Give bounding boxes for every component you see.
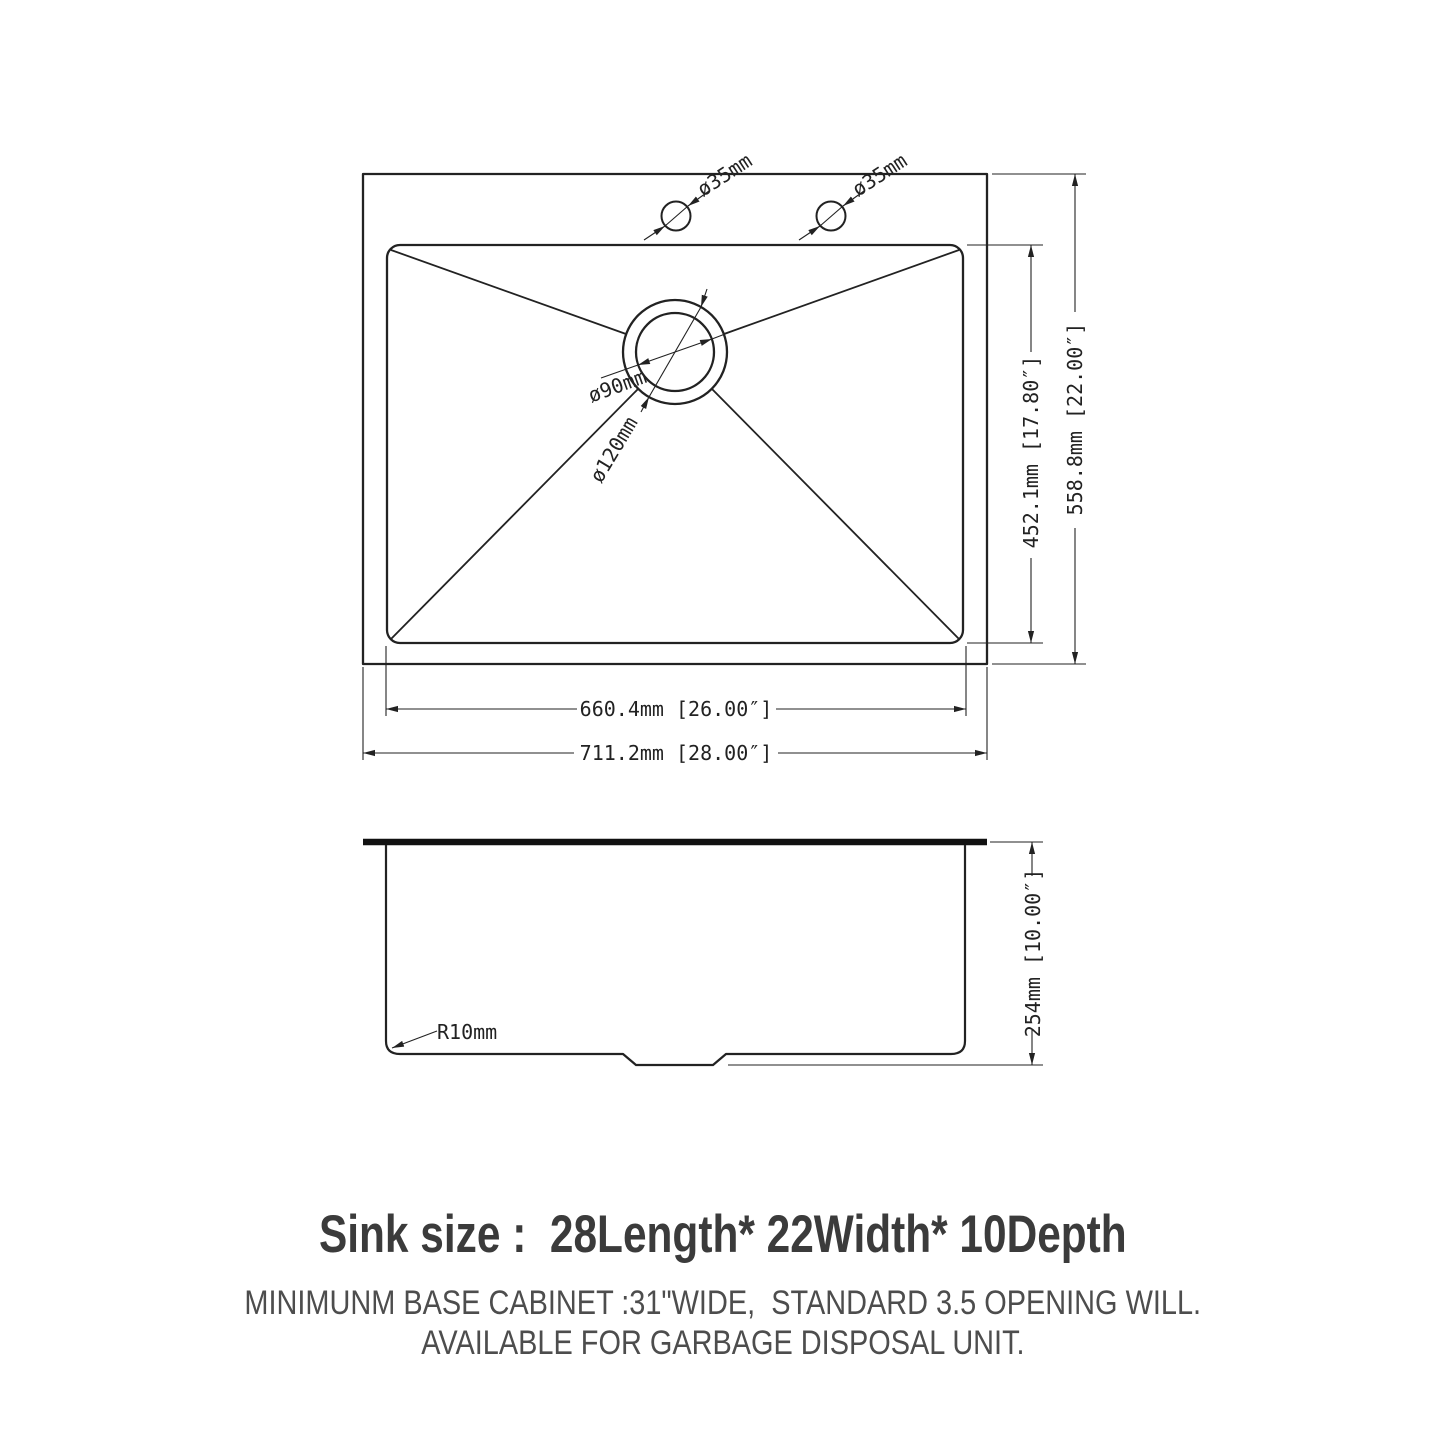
disposal-note-line: AVAILABLE FOR GARBAGE DISPOSAL UNIT.: [0, 1324, 1445, 1362]
corner-radius-leader: [392, 1031, 437, 1048]
cabinet-note-text: MINIMUNM BASE CABINET :31"WIDE, STANDARD…: [244, 1284, 1201, 1322]
drain-outer-dim: [641, 289, 707, 412]
bowl-height-label: 452.1mm [17.80″]: [1019, 356, 1043, 549]
sink-bowl-outline: [387, 245, 963, 643]
hole2-dim-leader: [799, 191, 864, 240]
corner-radius-label: R10mm: [437, 1020, 497, 1044]
bowl-width-label: 660.4mm [26.00″]: [580, 697, 773, 721]
side-view-extension-lines: [728, 842, 1043, 1065]
depth-label: 254mm [10.00″]: [1021, 869, 1045, 1038]
sink-dimension-drawing-page: { "colors": { "background": "#ffffff", "…: [0, 0, 1445, 1445]
sink-size-title-text: Sink size : 28Length* 22Width* 10Depth: [319, 1206, 1127, 1264]
overall-width-label: 711.2mm [28.00″]: [580, 741, 773, 765]
sink-outer-rim-outline: [363, 174, 987, 664]
disposal-note-text: AVAILABLE FOR GARBAGE DISPOSAL UNIT.: [421, 1324, 1024, 1362]
top-view-extension-lines: [363, 174, 1086, 760]
top-view: ø35mm ø35mm ø90mm ø120mm 452.1mm [17.80″…: [363, 148, 1087, 765]
drain-inner-diameter-label: ø90mm: [585, 364, 650, 407]
hole1-dim-leader: [644, 191, 709, 240]
drain-outer-diameter-label: ø120mm: [585, 412, 643, 486]
technical-drawing-canvas: ø35mm ø35mm ø90mm ø120mm 452.1mm [17.80″…: [0, 0, 1445, 1180]
cabinet-note-line: MINIMUNM BASE CABINET :31"WIDE, STANDARD…: [0, 1284, 1445, 1322]
sink-size-title: Sink size : 28Length* 22Width* 10Depth: [0, 1206, 1445, 1264]
overall-height-label: 558.8mm [22.00″]: [1063, 323, 1087, 516]
side-view: R10mm 254mm [10.00″]: [363, 842, 1045, 1065]
bowl-diagonals: [391, 250, 959, 639]
